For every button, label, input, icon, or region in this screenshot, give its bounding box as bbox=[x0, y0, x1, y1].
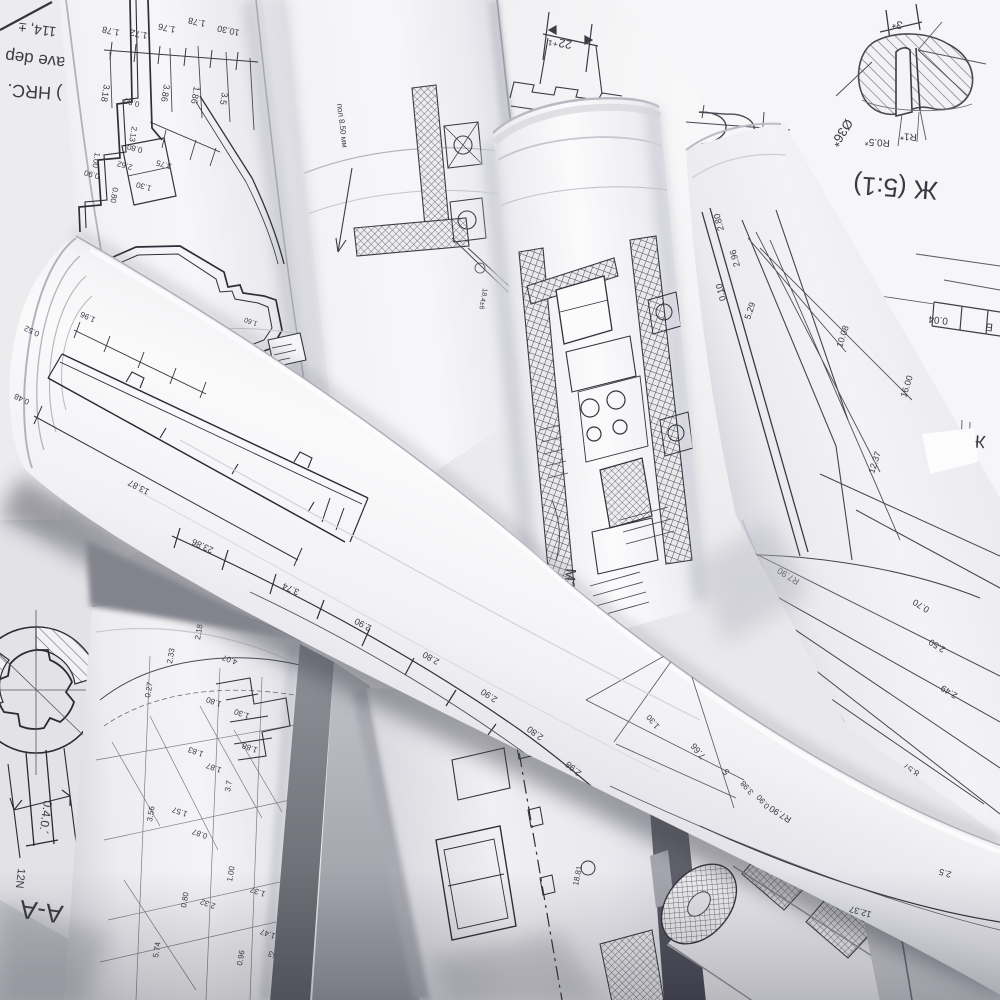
svg-text:3.5: 3.5 bbox=[218, 92, 230, 106]
svg-text:Б: Б bbox=[985, 320, 993, 333]
svg-text:Ж (5:1): Ж (5:1) bbox=[852, 170, 939, 206]
svg-text:) HRC.: ) HRC. bbox=[6, 80, 62, 104]
svg-text:R1*: R1* bbox=[900, 130, 917, 142]
svg-text:0.04: 0.04 bbox=[928, 313, 949, 326]
svg-text:R0.5*: R0.5* bbox=[864, 136, 890, 148]
